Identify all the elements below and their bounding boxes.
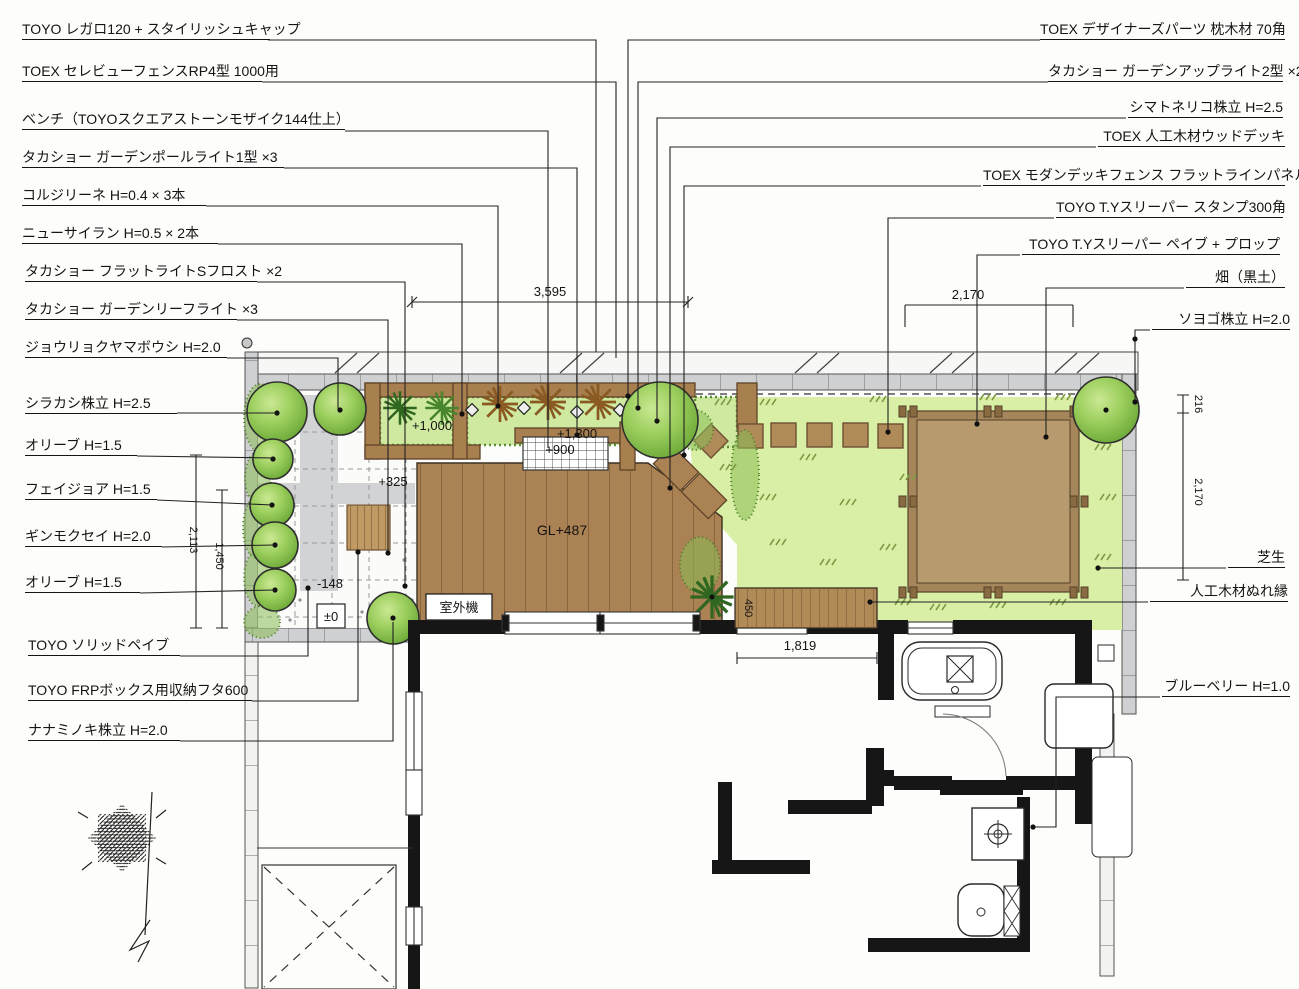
leader-dot xyxy=(667,485,672,490)
level-datum: ±0 xyxy=(324,609,338,624)
right-annotation-label-10: 人工木材ぬれ縁 xyxy=(1150,582,1288,602)
level-deck-rim: +1,300 xyxy=(557,426,597,441)
left-annotation-label-7: タカショー ガーデンリーフライト ×3 xyxy=(25,300,237,320)
level-bench: +900 xyxy=(545,442,574,457)
left-annotation-label-14: TOYO ソリッドペイブ xyxy=(28,636,180,656)
leader-dot xyxy=(1030,824,1035,829)
right-annotation-label-6: TOYO T.Yスリーパー ペイブ + プロップ xyxy=(1022,235,1280,255)
leader-dot xyxy=(635,405,640,410)
utility-fixtures xyxy=(958,808,1024,936)
leader-dot xyxy=(681,452,686,457)
door-panel xyxy=(1004,886,1020,936)
right-annotation-label-4: TOEX モダンデッキフェンス フラットラインパネルT08 xyxy=(983,166,1285,186)
dim-side-height: 2,170 xyxy=(1192,478,1204,506)
left-annotation-label-12: ギンモクセイ H=2.0 xyxy=(25,527,162,547)
dim-terrace-inner: 1,450 xyxy=(213,542,225,570)
dim-side-upper: 216 xyxy=(1192,395,1204,413)
left-annotation-label-3: タカショー ガーデンポールライト1型 ×3 xyxy=(22,148,284,168)
right-annotation-label-0: TOEX デザイナーズパーツ 枕木材 70角 xyxy=(1040,20,1285,40)
leader-dot xyxy=(885,429,890,434)
level-planter: +1,000 xyxy=(412,418,452,433)
leader-dot xyxy=(459,411,464,416)
right-annotation-label-9: 芝生 xyxy=(1228,548,1285,568)
left-annotation-label-11: フェイジョア H=1.5 xyxy=(25,480,157,500)
leader-dot xyxy=(355,549,360,554)
north-arrow-icon xyxy=(78,792,166,962)
dim-veranda-depth: 450 xyxy=(742,599,754,617)
outdoor-unit: 室外機 xyxy=(426,594,492,620)
wood-veranda xyxy=(735,588,877,628)
right-annotation-label-5: TOYO T.Yスリーパー スタンプ300角 xyxy=(1056,198,1283,218)
garage xyxy=(257,848,413,989)
left-annotation-label-0: TOYO レガロ120 + スタイリッシュキャップ xyxy=(22,20,270,40)
left-annotation-label-1: TOEX セレビューフェンスRP4型 1000用 xyxy=(22,62,262,82)
frp-box-lid xyxy=(347,505,390,550)
level-deck: GL+487 xyxy=(537,522,587,538)
level-terrace: +325 xyxy=(378,474,407,489)
dim-field-width: 2,170 xyxy=(952,287,985,302)
leader-line xyxy=(268,40,596,352)
left-annotation-label-8: ジョウリョクヤマボウシ H=2.0 xyxy=(25,338,227,358)
right-annotation-label-7: 畑（黒土） xyxy=(1186,268,1285,288)
fence-post xyxy=(242,338,252,348)
leader-dot xyxy=(974,421,979,426)
dim-garden-width: 3,595 xyxy=(534,284,567,299)
leader-dot xyxy=(402,583,407,588)
leader-dot xyxy=(1043,434,1048,439)
leader-dot xyxy=(495,403,500,408)
left-annotation-label-6: タカショー フラットライトSフロスト ×2 xyxy=(25,262,257,282)
garden-plan-canvas: 室外機 3,595 2,170 216 2,170 2,113 1,450 1 xyxy=(0,0,1299,989)
right-annotation-label-2: シマトネリコ株立 H=2.5 xyxy=(1128,98,1283,118)
leader-dot xyxy=(1095,565,1100,570)
dim-opening-width: 1,819 xyxy=(784,638,817,653)
leader-dot xyxy=(867,599,872,604)
leader-dot xyxy=(1132,399,1137,404)
vegetable-field xyxy=(899,406,1088,598)
level-step: -148 xyxy=(317,576,343,591)
leader-dot xyxy=(625,393,630,398)
left-annotation-label-5: ニューサイラン H=0.5 × 2本 xyxy=(22,224,218,244)
right-annotation-label-8: ソヨゴ株立 H=2.0 xyxy=(1152,310,1290,330)
right-annotation-label-11: ブルーベリー H=1.0 xyxy=(1162,677,1290,697)
dim-terrace-height: 2,113 xyxy=(187,527,199,554)
left-annotation-label-10: オリーブ H=1.5 xyxy=(25,436,137,456)
door-swing-arc xyxy=(943,714,1006,776)
storage-counter xyxy=(1092,757,1132,857)
leader-dot xyxy=(385,550,390,555)
left-annotation-label-16: ナナミノキ株立 H=2.0 xyxy=(28,721,180,741)
left-annotation-label-4: コルジリーネ H=0.4 × 3本 xyxy=(22,186,206,206)
left-annotation-label-13: オリーブ H=1.5 xyxy=(25,573,140,593)
left-annotation-label-9: シラカシ株立 H=2.5 xyxy=(25,394,177,414)
right-annotation-label-3: TOEX 人工木材ウッドデッキ xyxy=(1098,127,1285,147)
left-annotation-label-15: TOYO FRPボックス用収納フタ600 xyxy=(28,681,252,701)
outdoor-unit-label: 室外機 xyxy=(439,600,478,615)
right-annotation-label-1: タカショー ガーデンアップライト2型 ×2 xyxy=(1048,62,1283,82)
left-annotation-label-2: ベンチ（TOYOスクエアストーンモザイク144仕上） xyxy=(22,110,345,130)
leader-dot xyxy=(305,585,310,590)
leader-dot xyxy=(1132,336,1137,341)
washbasin-counter xyxy=(1045,684,1113,748)
